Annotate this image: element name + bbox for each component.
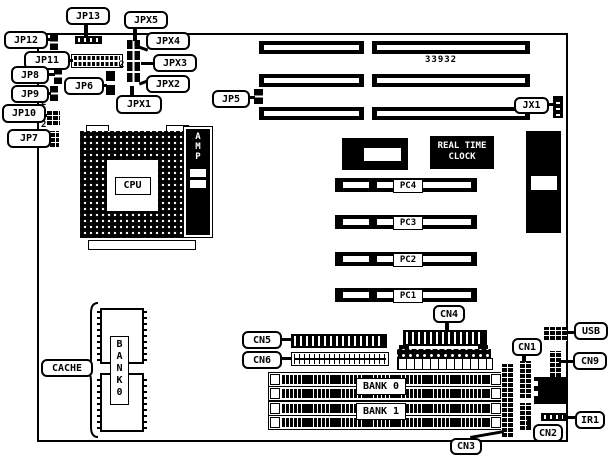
callout-ir1: IR1: [575, 411, 605, 429]
cpu-socket: CPU: [80, 131, 185, 238]
jp9-jumper: [50, 86, 58, 101]
callout-cn9: CN9: [573, 352, 607, 370]
callout-jp5: JP5: [212, 90, 250, 108]
bank0-vertical-label: BANK0: [110, 336, 129, 405]
pci-slot-pc1: PC1: [335, 288, 477, 302]
cn4-connector: [403, 330, 487, 346]
kbd-label: KBD: [530, 175, 558, 191]
cpu-socket-lever: [88, 240, 196, 250]
callout-jp9: JP9: [11, 85, 49, 103]
isa-slot: [259, 74, 364, 87]
isa-slot: [259, 41, 364, 54]
amp-connector: AMP: [183, 126, 213, 238]
isa-slot: [372, 41, 530, 54]
cn1-header: [519, 361, 531, 399]
cn9-header: [549, 351, 562, 378]
jx1-jumper: [553, 96, 563, 118]
callout-jpx5: JPX5: [124, 11, 168, 29]
usb-header: [543, 327, 567, 341]
callout-jp10: JP10: [2, 104, 46, 123]
power-connector-sockets: [397, 358, 493, 370]
cn3-header: [501, 364, 513, 438]
callout-jp6: JP6: [64, 77, 104, 95]
bios-label: BIOS: [363, 147, 402, 162]
pci-slot-label: PC2: [393, 253, 423, 267]
jpx4-jumper: [127, 51, 140, 60]
bank0-label: BANK 0: [356, 378, 406, 395]
jp10-header: [46, 110, 60, 126]
callout-cn1: CN1: [512, 338, 542, 356]
isa-slot: [259, 107, 364, 120]
rtc-label-line2: CLOCK: [430, 152, 494, 163]
pin2-marker: 2: [119, 60, 124, 70]
isa-slot: [372, 74, 530, 87]
power-connector-pins: [397, 349, 491, 358]
jp11-header: [71, 54, 123, 68]
jp13-header: [75, 36, 102, 44]
jp5-jumper: [254, 89, 263, 104]
callout-usb: USB: [574, 322, 608, 340]
pci-slot-label: PC4: [393, 179, 423, 193]
cn5-connector: [291, 334, 387, 348]
motherboard-diagram: 33932 PC4 PC3 PC2 PC1 CPU AMP BIOS R: [0, 0, 609, 456]
isa-slot: [372, 107, 530, 120]
callout-jp12: JP12: [4, 31, 48, 49]
callout-jp8: JP8: [11, 66, 49, 84]
pci-slot-pc3: PC3: [335, 215, 477, 229]
callout-cn3: CN3: [450, 438, 482, 455]
pci-slot-label: PC1: [393, 289, 423, 303]
pci-slot-pc4: PC4: [335, 178, 477, 192]
pci-slot-label: PC3: [393, 216, 423, 230]
callout-jpx4: JPX4: [146, 32, 190, 50]
jpx3-jumper: [127, 62, 140, 71]
bank1-label: BANK 1: [356, 403, 406, 420]
callout-cn2: CN2: [533, 424, 563, 442]
bios-chip: BIOS: [342, 138, 408, 170]
callout-cache: CACHE: [41, 359, 93, 377]
pci-slot-pc2: PC2: [335, 252, 477, 266]
callout-cn5: CN5: [242, 331, 282, 349]
cpu-label: CPU: [115, 177, 151, 195]
callout-cn4: CN4: [433, 305, 465, 323]
callout-cn6: CN6: [242, 351, 282, 369]
amp-connector-label: AMP: [193, 132, 203, 162]
jp6-jumper: [106, 71, 115, 95]
cn6-connector: [291, 352, 389, 366]
callout-jp7: JP7: [7, 129, 51, 148]
jpx2-jumper: [127, 73, 140, 82]
rtc-chip: REAL TIME CLOCK: [430, 136, 494, 169]
callout-jpx2: JPX2: [146, 75, 190, 93]
din-connector: [534, 377, 567, 404]
callout-jx1: JX1: [514, 97, 549, 114]
callout-jpx1: JPX1: [116, 95, 162, 114]
jp8-jumper: [54, 68, 62, 84]
kbd-connector: KBD: [526, 131, 561, 233]
rtc-label-line1: REAL TIME: [430, 141, 494, 152]
callout-jpx3: JPX3: [153, 54, 197, 72]
part-number: 33932: [425, 55, 457, 65]
cn2-header: [519, 403, 531, 431]
callout-jp13: JP13: [66, 7, 110, 25]
